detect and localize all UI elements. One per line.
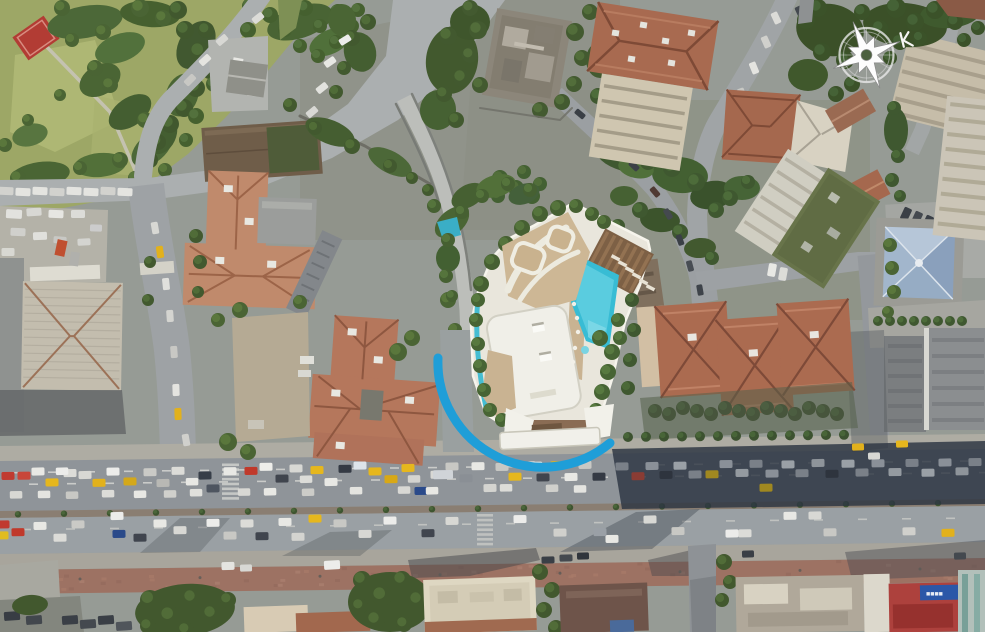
svg-text:■■■■: ■■■■ bbox=[926, 591, 943, 598]
